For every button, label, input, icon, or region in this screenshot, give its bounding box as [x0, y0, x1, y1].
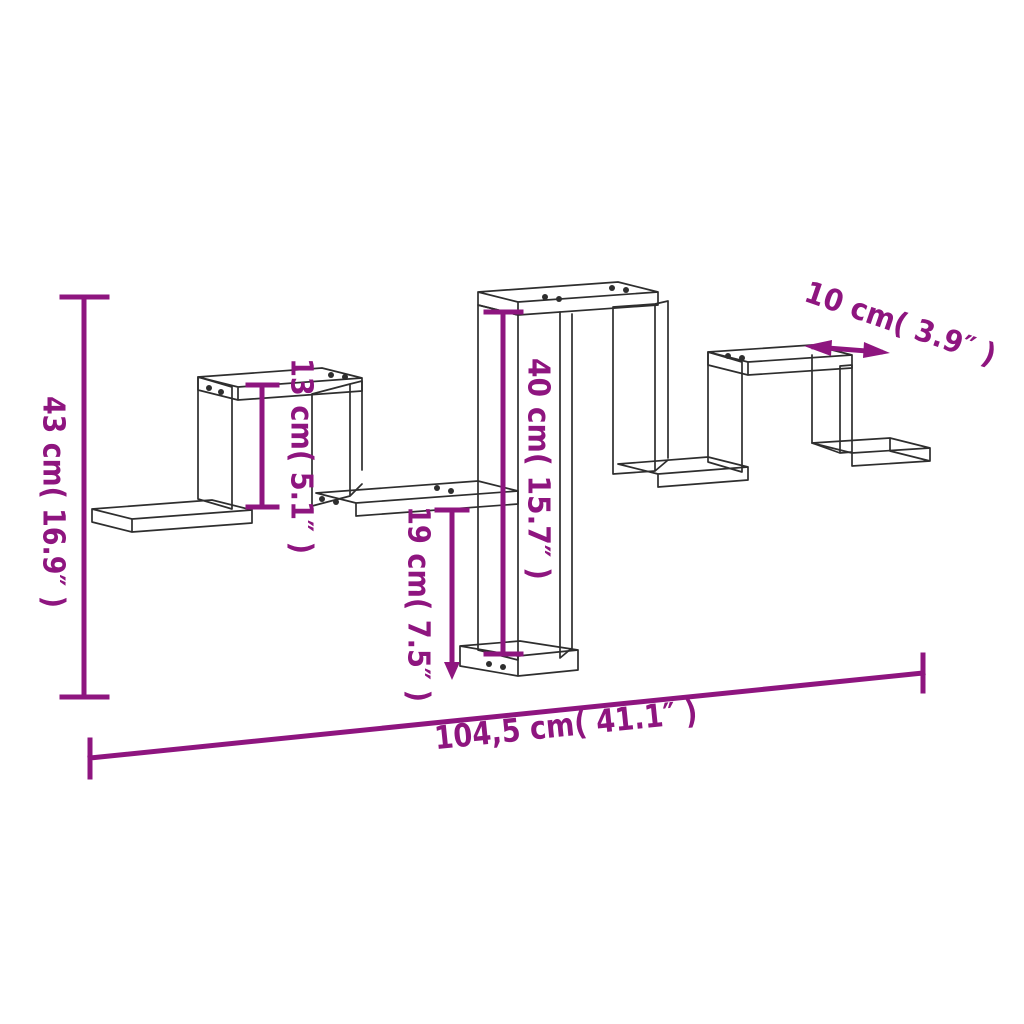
- left-cube-top-board: [198, 368, 362, 400]
- dimension-lower-height-label: 19 cm( 7.5″ ): [401, 506, 436, 702]
- dimension-cube-height-line: [248, 385, 277, 507]
- dimension-lower-height-line: [437, 510, 467, 664]
- dimension-total-width-label: 104,5 cm( 41.1″ ): [433, 693, 699, 757]
- dimension-depth-arrowhead-left: [804, 340, 832, 356]
- right-riser-panel: [613, 301, 668, 474]
- dimension-middle-height-line: [486, 312, 521, 654]
- diagram-canvas: 43 cm( 16.9″ ) 13 cm( 5.1″ ) 40 cm( 15.7…: [0, 0, 1024, 1024]
- dimension-middle-height-label: 40 cm( 15.7″ ): [521, 358, 556, 580]
- wall-shelf-dimension-diagram: 43 cm( 16.9″ ) 13 cm( 5.1″ ) 40 cm( 15.7…: [0, 0, 1024, 1024]
- shelf-line-drawing: [92, 282, 930, 676]
- dimension-cube-height-label: 13 cm( 5.1″ ): [284, 358, 319, 554]
- board-bottom-left: [92, 500, 252, 532]
- dimension-depth-label: 10 cm( 3.9″ ): [800, 275, 1000, 373]
- dimension-lower-height-arrowhead: [444, 662, 460, 680]
- dimension-total-height-label: 43 cm( 16.9″ ): [36, 396, 71, 608]
- left-cube-right-panel: [312, 381, 362, 506]
- board-bottom-right: [812, 438, 930, 466]
- dimension-depth-arrowhead-right: [863, 342, 890, 358]
